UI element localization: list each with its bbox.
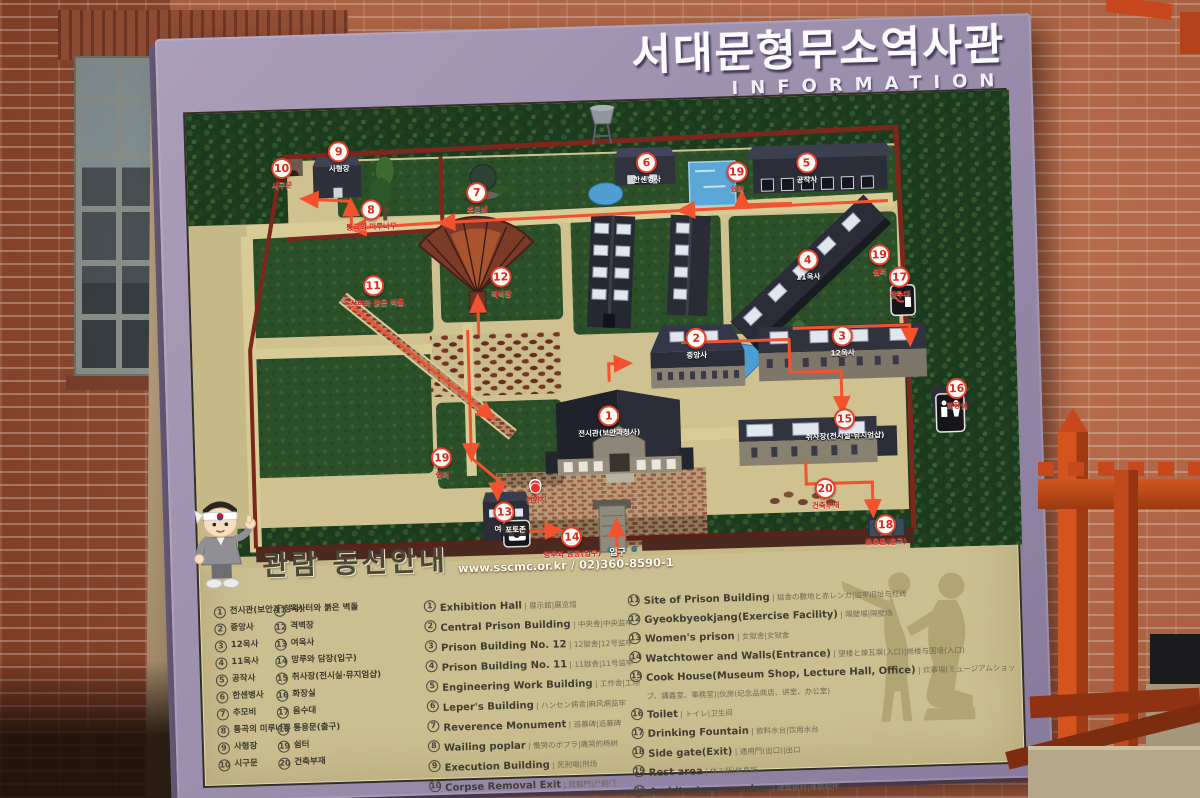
- legend-label-english: Side gate(Exit): [648, 746, 732, 759]
- legend-number-icon: 5: [426, 680, 438, 692]
- legend-number-icon: 9: [428, 760, 440, 772]
- legend-label: 쉼터: [294, 737, 310, 754]
- legend-label-cjk: | トイレ|卫生间: [678, 709, 733, 720]
- marker-label: 중앙사: [686, 349, 707, 361]
- marker-number: 12: [490, 266, 512, 288]
- marker-label: 전시관(보안과청사): [578, 426, 640, 439]
- stone-plinth: [1028, 746, 1200, 798]
- legend-label-english: Exhibition Hall: [440, 601, 522, 614]
- legend-label-english: Prison Building No. 12: [441, 639, 567, 654]
- map-marker-2: 2중앙사: [685, 327, 707, 361]
- legend-item-1: 1전시관(보안과 청사): [214, 602, 272, 621]
- marker-number: 17: [889, 267, 911, 289]
- legend-item-5: 5공작사: [216, 670, 274, 689]
- legend-label-cjk: | 展示館|展览馆: [522, 600, 577, 611]
- legend-label-cjk: | 追慕碑|追慕碑: [566, 719, 621, 730]
- legend-number-icon: 19: [278, 740, 290, 752]
- map-marker-17: 17음수대: [889, 267, 911, 301]
- legend-label-english: Prison Building No. 11: [441, 659, 567, 674]
- legend-label-english: Rest area: [649, 766, 703, 779]
- legend-label-english: Architecture member: [649, 783, 770, 798]
- legend-english-col2: 11Site of Prison Building | 獄舎の敷地と赤レンガ|监…: [627, 580, 1029, 798]
- map-marker-8: 8통곡의 미루나무: [345, 198, 397, 232]
- marker-label: 추모비: [467, 204, 488, 216]
- legend-number-icon: 3: [215, 640, 227, 652]
- shadow-corner: [0, 660, 190, 798]
- map-marker-5: 5공작사: [796, 152, 818, 186]
- map-marker-1: 1전시관(보안과청사): [577, 404, 640, 439]
- guide-row: 관람 동선안내 www.sscmc.or.kr / 02)360-8590-1: [196, 474, 799, 592]
- legend-number-icon: 13: [629, 632, 641, 644]
- prison-building-a: [587, 215, 635, 329]
- legend-number-icon: 8: [428, 740, 440, 752]
- legend-number-icon: 17: [631, 727, 643, 739]
- legend-number-icon: 9: [218, 742, 230, 754]
- legend-label-cjk: | 通用門(出口)|出口: [732, 745, 800, 756]
- mascot-character: [182, 490, 261, 594]
- guide-contact: www.sscmc.or.kr / 02)360-8590-1: [458, 555, 674, 578]
- legend-number-icon: 6: [216, 691, 228, 703]
- marker-number: 15: [834, 408, 856, 430]
- map-marker-15: 15취사장(전시실·뮤지엄샵): [805, 407, 885, 442]
- legend-label-cjk: | 死刑場|刑场: [550, 759, 598, 769]
- legend-label-english: Women's prison: [645, 632, 735, 646]
- map-marker-9: 9사형장: [328, 141, 350, 175]
- legend-number-icon: 4: [425, 660, 437, 672]
- legend-number-icon: 20: [278, 757, 290, 769]
- photo-scene: 서대문형무소역사관 INFORMATION: [0, 0, 1200, 798]
- legend-label-english: Central Prison Building: [440, 619, 570, 634]
- marker-number: 20: [814, 478, 836, 500]
- map-marker-4: 411옥사: [795, 249, 820, 283]
- engineering-work-building: [746, 142, 893, 193]
- legend-label: 여옥사: [291, 635, 315, 653]
- marker-number: 4: [797, 249, 819, 271]
- legend-number-icon: 2: [424, 620, 436, 632]
- fence-fragment-corner: [1180, 12, 1200, 54]
- marker-label: 쉼터: [873, 266, 887, 277]
- legend-item-10: 10시구문: [218, 755, 276, 774]
- legend-number-icon: 20: [633, 784, 645, 796]
- legend-label-english: Cook House(Museum Shop, Lecture Hall, Of…: [646, 665, 916, 684]
- legend-item-6: 6한센병사: [216, 687, 274, 706]
- marker-number: 18: [875, 514, 897, 536]
- legend-number-icon: 16: [276, 689, 288, 701]
- guide-title: 관람 동선안내: [262, 539, 448, 584]
- legend-number-icon: 16: [631, 708, 643, 720]
- legend-number-icon: 18: [277, 723, 289, 735]
- marker-label: 음수대: [890, 289, 911, 301]
- map-marker-16: 16화장실: [946, 378, 968, 412]
- map-marker-19: 19쉼터: [726, 161, 748, 195]
- marker-label: 격벽장: [491, 288, 512, 300]
- marker-number: 8: [360, 199, 382, 221]
- legend-label: 취사장(전시실·뮤지엄샵): [292, 667, 382, 687]
- legend-number-icon: 14: [275, 655, 287, 667]
- legend-item-9: 9사형장: [218, 738, 276, 757]
- fence-post-cap: [1058, 408, 1088, 432]
- marker-number: 10: [271, 157, 293, 179]
- legend-label: 망루와 담장(입구): [291, 650, 357, 669]
- map-marker-10: 10시구문: [271, 157, 293, 191]
- legend-label: 옥사터와 붉은 벽돌: [290, 599, 359, 618]
- legend-item-2: 2중앙사: [214, 619, 272, 638]
- legend-number-icon: 3: [425, 640, 437, 652]
- legend-label: 11옥사: [231, 653, 259, 671]
- map-marker-12: 12격벽장: [490, 266, 512, 300]
- legend-label-cjk: | ハンセン病舎|麻风病监牢: [534, 698, 627, 710]
- legend-number-icon: 12: [628, 613, 640, 625]
- marker-number: 19: [431, 447, 453, 469]
- marker-number: 19: [726, 161, 748, 183]
- legend-number-icon: 5: [216, 674, 228, 686]
- marker-label: 옥사터와 붉은 벽돌: [343, 296, 404, 309]
- legend-item-4: 411옥사: [215, 653, 273, 672]
- map-marker-7: 7추모비: [466, 182, 488, 216]
- legend-label: 시구문: [234, 755, 258, 773]
- legend-label: 화장실: [292, 686, 316, 704]
- legend-number-icon: 11: [274, 604, 286, 616]
- marker-number: 1: [598, 405, 620, 427]
- legend-label: 추모비: [233, 704, 257, 722]
- legend-label-english: Execution Building: [444, 760, 550, 774]
- legend-number-icon: 7: [427, 720, 439, 732]
- map-marker-19: 19쉼터: [431, 447, 453, 481]
- legend-label-cjk: | 12獄舎|12号监牢: [566, 638, 633, 649]
- legend: 1전시관(보안과 청사)2중앙사312옥사411옥사5공작사6한센병사7추모비8…: [208, 580, 1021, 784]
- legend-number-icon: 14: [629, 651, 641, 663]
- legend-number-icon: 17: [277, 706, 289, 718]
- legend-label-cjk: | 望楼と煉瓦塀(入口)|岗楼与围墙(入口): [831, 645, 965, 658]
- legend-label-cjk: | 飲料水台|饮用水台: [749, 725, 819, 736]
- marker-label: 쉼터: [730, 183, 744, 194]
- legend-number-icon: 1: [214, 606, 226, 618]
- legend-label-english: Toilet: [647, 709, 678, 721]
- marker-label: 한센병사: [633, 173, 661, 185]
- marker-label: 취사장(전시실·뮤지엄샵): [806, 429, 885, 442]
- map-marker-19: 19쉼터: [868, 244, 890, 278]
- legend-label-cjk: | 隔壁場|隔壁场: [838, 609, 893, 620]
- legend-number-icon: 2: [214, 623, 226, 635]
- legend-number-icon: 4: [215, 657, 227, 669]
- legend-label-cjk: | 慟哭のポプラ|痛哭的杨树: [526, 739, 619, 751]
- legend-number-icon: 6: [427, 700, 439, 712]
- legend-number-icon: 13: [275, 638, 287, 650]
- marker-number: 7: [466, 182, 488, 204]
- marker-label: 12옥사: [830, 347, 855, 359]
- legend-label-cjk: | 建築部材|建築构件: [769, 782, 839, 793]
- legend-number-icon: 18: [632, 746, 644, 758]
- legend-number-icon: 15: [276, 672, 288, 684]
- map-marker-6: 6한센병사: [632, 152, 661, 186]
- legend-label: 건축부재: [294, 753, 326, 771]
- legend-number-icon: 10: [429, 780, 441, 792]
- legend-label: 공작사: [232, 670, 256, 688]
- marker-label: 사형장: [329, 163, 350, 175]
- legend-label-cjk: | 女獄舎|女狱舍: [735, 631, 790, 642]
- legend-number-icon: 8: [217, 725, 229, 737]
- legend-label-english: Reverence Monument: [443, 719, 566, 734]
- map-marker-20: 20건축부재: [811, 478, 840, 512]
- legend-number-icon: 19: [633, 765, 645, 777]
- marker-label: 통용문(출구): [865, 535, 907, 547]
- legend-label-english: Leper's Building: [443, 700, 534, 714]
- map-marker-11: 11옥사터와 붉은 벽돌: [343, 274, 404, 309]
- legend-number-icon: 12: [274, 621, 286, 633]
- legend-label: 한센병사: [232, 687, 264, 705]
- legend-item-8: 8통곡의 미루나무: [217, 721, 275, 740]
- legend-number-icon: 1: [424, 600, 436, 612]
- marker-number: 6: [636, 152, 658, 174]
- marker-label: 쉼터: [435, 469, 449, 480]
- marker-number: 5: [796, 152, 818, 174]
- legend-item-7: 7추모비: [217, 704, 275, 723]
- marker-number: 2: [685, 327, 707, 349]
- legend-label: 통용문(출구): [293, 719, 340, 737]
- legend-english-col1: 1Exhibition Hall | 展示館|展览馆2Central Priso…: [424, 591, 640, 797]
- marker-label: 건축부재: [812, 500, 840, 512]
- legend-item-3: 312옥사: [215, 636, 273, 655]
- legend-label-english: Wailing poplar: [444, 740, 526, 753]
- marker-number: 16: [946, 378, 968, 400]
- legend-label-english: Drinking Fountain: [648, 726, 750, 740]
- map-panel: 1전시관(보안과청사)2중앙사312옥사411옥사5공작사6한센병사7추모비8통…: [183, 88, 1027, 788]
- legend-label: 중앙사: [230, 619, 254, 637]
- legend-number-icon: 7: [217, 708, 229, 720]
- legend-number-icon: 15: [630, 670, 642, 682]
- marker-number: 19: [868, 244, 890, 266]
- legend-label-english: Site of Prison Building: [644, 592, 770, 607]
- legend-korean-col1: 1전시관(보안과 청사)2중앙사312옥사411옥사5공작사6한센병사7추모비8…: [214, 602, 277, 774]
- marker-label: 시구문: [271, 179, 292, 191]
- legend-number-icon: 11: [628, 594, 640, 606]
- marker-label: 통곡의 미루나무: [346, 220, 397, 233]
- legend-label-english: Corpse Removal Exit: [445, 779, 561, 793]
- legend-label-cjk: | 中央舎|中央监牢: [570, 618, 633, 629]
- legend-label: 격벽장: [290, 618, 314, 636]
- marker-number: 9: [328, 141, 350, 163]
- legend-label: 12옥사: [231, 636, 259, 654]
- legend-korean-col2: 11옥사터와 붉은 벽돌12격벽장13여옥사14망루와 담장(입구)15취사장(…: [274, 597, 427, 771]
- marker-number: 3: [831, 325, 853, 347]
- legend-label-english: Engineering Work Building: [442, 678, 593, 693]
- prison-building-b: [667, 215, 711, 317]
- map-marker-18: 18통용문(출구): [865, 513, 907, 547]
- map-marker-3: 312옥사: [830, 325, 855, 359]
- legend-number-icon: 10: [218, 759, 230, 771]
- legend-label-cjk: | 休み所|休息所: [703, 765, 758, 776]
- legend-label-cjk: | 11獄舎|11号监牢: [567, 658, 634, 669]
- marker-number: 11: [362, 275, 384, 297]
- marker-label: 공작사: [796, 174, 817, 186]
- legend-label: 사형장: [234, 738, 258, 756]
- legend-label: 음수대: [293, 703, 317, 721]
- marker-label: 11옥사: [796, 271, 821, 283]
- legend-label-cjk: | 屍軀門|尸躯门: [561, 779, 616, 790]
- information-signboard: 서대문형무소역사관 INFORMATION: [155, 13, 1053, 798]
- legend-item-20: 20건축부재: [278, 750, 426, 771]
- marker-label: 화장실: [947, 400, 968, 412]
- legend-label-cjk: | 獄舎の敷地と赤レンガ|监牢旧址与红砖: [770, 589, 908, 602]
